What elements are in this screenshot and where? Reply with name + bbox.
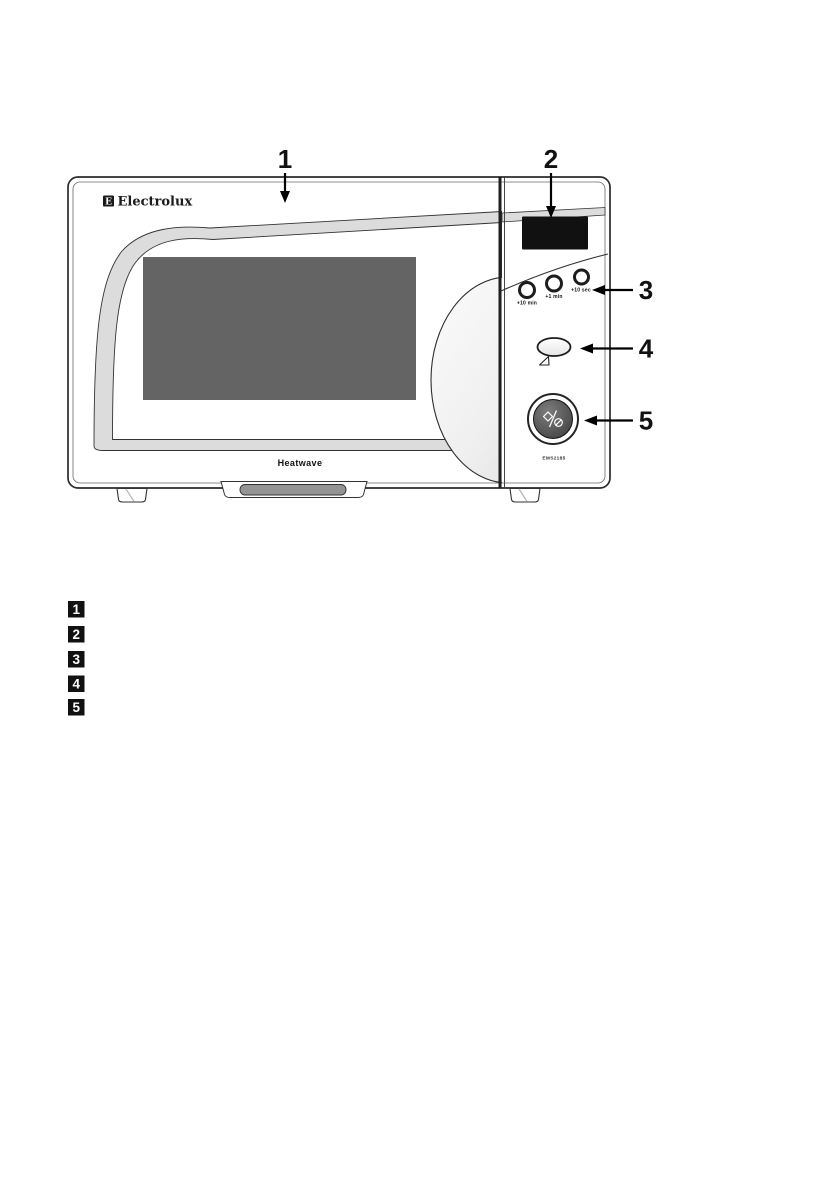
legend-marker-1: 1: [68, 601, 85, 618]
right-foot: [510, 489, 540, 503]
manual-page: Heatwave E Electrolux +10 min +1 min +10…: [0, 0, 838, 1190]
door-bottom-latch: [221, 482, 367, 498]
legend-marker-2: 2: [68, 626, 85, 643]
logo-letter: E: [105, 197, 112, 207]
callout-3-number: 3: [639, 275, 653, 305]
plus-10-min-button: [520, 283, 535, 298]
svg-text:4: 4: [72, 677, 80, 692]
plus-10-sec-label: +10 sec: [571, 288, 591, 294]
plus-10-min-label: +10 min: [517, 301, 537, 307]
callout-1-number: 1: [278, 144, 292, 174]
callout-2-number: 2: [544, 144, 558, 174]
left-foot: [117, 489, 147, 503]
callout-4-number: 4: [639, 334, 654, 364]
model-label: EMS2185: [542, 456, 565, 462]
svg-text:3: 3: [72, 652, 80, 667]
legend-marker-5: 5: [68, 699, 85, 716]
legend-marker-3: 3: [68, 651, 85, 668]
plus-1-min-label: +1 min: [545, 294, 562, 300]
plus-10-sec-button: [575, 270, 589, 284]
legend-marker-4: 4: [68, 676, 85, 693]
plus-1-min-button: [547, 276, 562, 291]
svg-text:1: 1: [72, 602, 80, 617]
door-window: [143, 257, 416, 400]
brand-wordmark: Electrolux: [118, 195, 193, 210]
display: [522, 217, 588, 250]
microwave-diagram: Heatwave E Electrolux +10 min +1 min +10…: [0, 0, 838, 1190]
svg-text:5: 5: [72, 700, 80, 715]
svg-text:2: 2: [72, 627, 80, 642]
legend: 1 2 3 4 5: [68, 601, 85, 716]
callout-5-number: 5: [639, 406, 653, 436]
product-name-label: Heatwave: [278, 458, 323, 468]
start-stop-button: [528, 394, 578, 444]
